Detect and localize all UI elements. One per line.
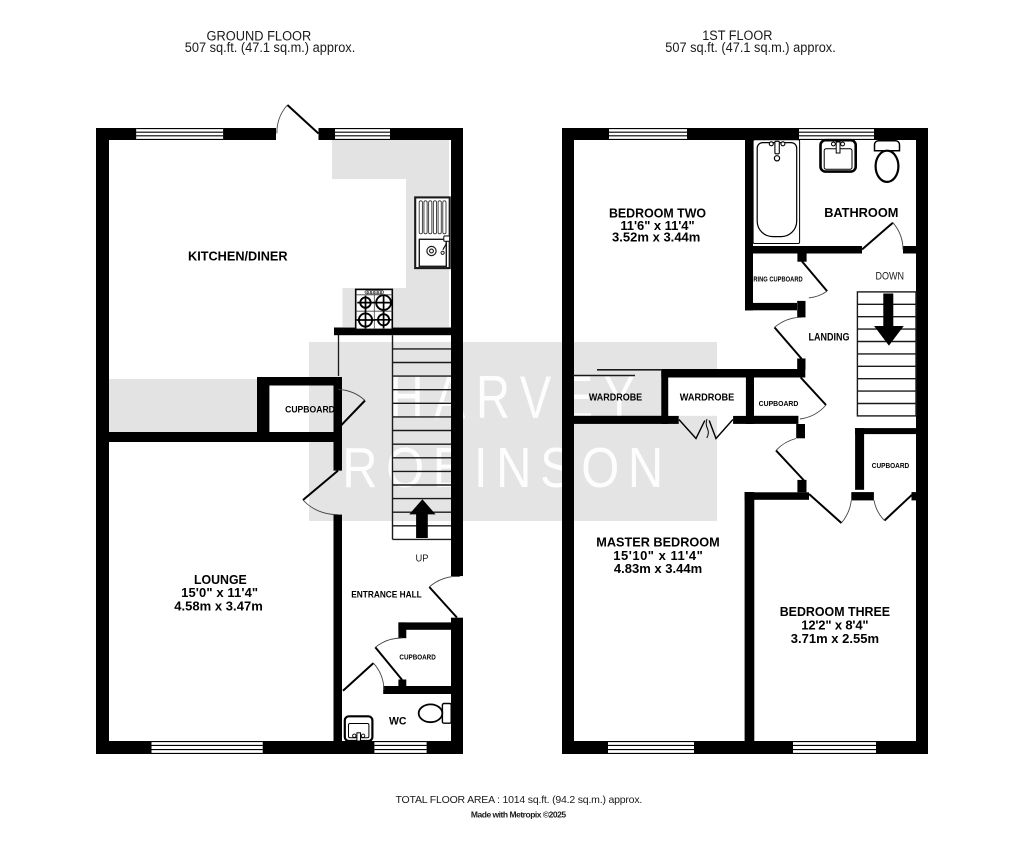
svg-text:RING CUPBOARD: RING CUPBOARD	[753, 276, 802, 283]
svg-text:3.52m x 3.44m: 3.52m x 3.44m	[612, 230, 700, 245]
svg-text:LANDING: LANDING	[809, 331, 850, 343]
svg-text:CUPBOARD: CUPBOARD	[285, 404, 335, 414]
svg-text:WARDROBE: WARDROBE	[589, 393, 642, 404]
svg-text:DOWN: DOWN	[876, 271, 905, 283]
svg-text:CUPBOARD: CUPBOARD	[872, 461, 910, 470]
svg-text:ENTRANCE HALL: ENTRANCE HALL	[351, 590, 422, 600]
svg-text:507 sq.ft. (47.1 sq.m.) approx: 507 sq.ft. (47.1 sq.m.) approx.	[665, 40, 836, 55]
svg-text:TOTAL FLOOR AREA : 1014 sq.ft.: TOTAL FLOOR AREA : 1014 sq.ft. (94.2 sq.…	[396, 794, 643, 806]
svg-text:WARDROBE: WARDROBE	[680, 393, 735, 404]
svg-text:CUPBOARD: CUPBOARD	[399, 653, 436, 662]
svg-text:CUPBOARD: CUPBOARD	[759, 399, 799, 408]
svg-text:WC: WC	[389, 715, 407, 727]
svg-text:507 sq.ft. (47.1 sq.m.) approx: 507 sq.ft. (47.1 sq.m.) approx.	[185, 40, 356, 55]
svg-text:3.71m x 2.55m: 3.71m x 2.55m	[791, 631, 879, 646]
svg-text:BATHROOM: BATHROOM	[824, 205, 898, 220]
svg-text:UP: UP	[416, 553, 429, 565]
svg-text:KITCHEN/DINER: KITCHEN/DINER	[188, 249, 288, 264]
svg-text:Made with Metropix ©2025: Made with Metropix ©2025	[471, 809, 566, 819]
svg-text:4.58m x 3.47m: 4.58m x 3.47m	[174, 598, 263, 613]
svg-text:4.83m x 3.44m: 4.83m x 3.44m	[614, 561, 702, 576]
